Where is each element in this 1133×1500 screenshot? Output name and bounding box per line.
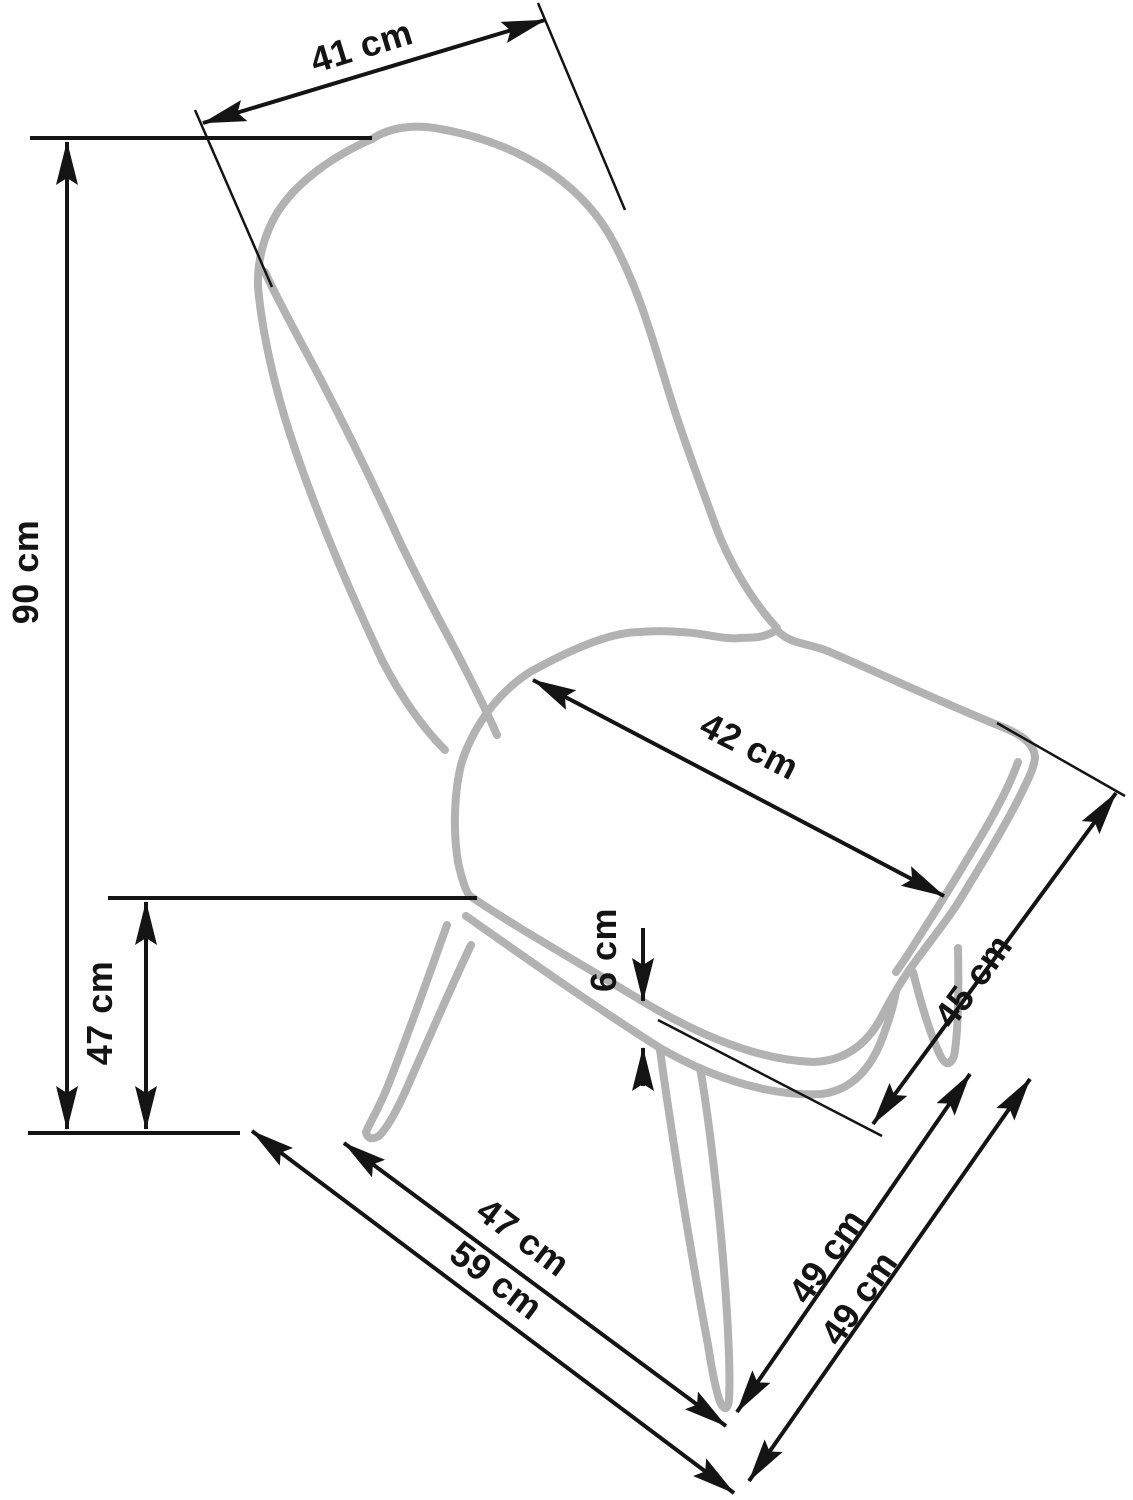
chair-front-right-leg <box>660 1050 729 1408</box>
chair-outline <box>258 127 1035 1408</box>
chair-cushion-bottom-edge <box>466 916 896 1094</box>
chair-dimension-diagram: 41 cm 90 cm 47 cm 42 cm 6 cm 45 cm 47 cm… <box>0 0 1133 1500</box>
label-cushion-thickness: 6 cm <box>583 908 624 992</box>
chair-front-left-leg <box>366 925 471 1138</box>
dim-line-base-width <box>252 1131 734 1493</box>
dim-line-seat-width <box>533 680 944 896</box>
label-backrest-top-width: 41 cm <box>305 11 417 81</box>
label-seat-depth: 45 cm <box>926 926 1021 1035</box>
extension-line-45-bottom <box>658 1020 882 1136</box>
label-total-height: 90 cm <box>5 520 46 625</box>
extension-line-41-right <box>538 3 625 210</box>
label-seat-height: 47 cm <box>79 961 120 1066</box>
dimension-annotations <box>28 3 1125 1493</box>
chair-backrest-top-right-edge <box>372 127 777 628</box>
